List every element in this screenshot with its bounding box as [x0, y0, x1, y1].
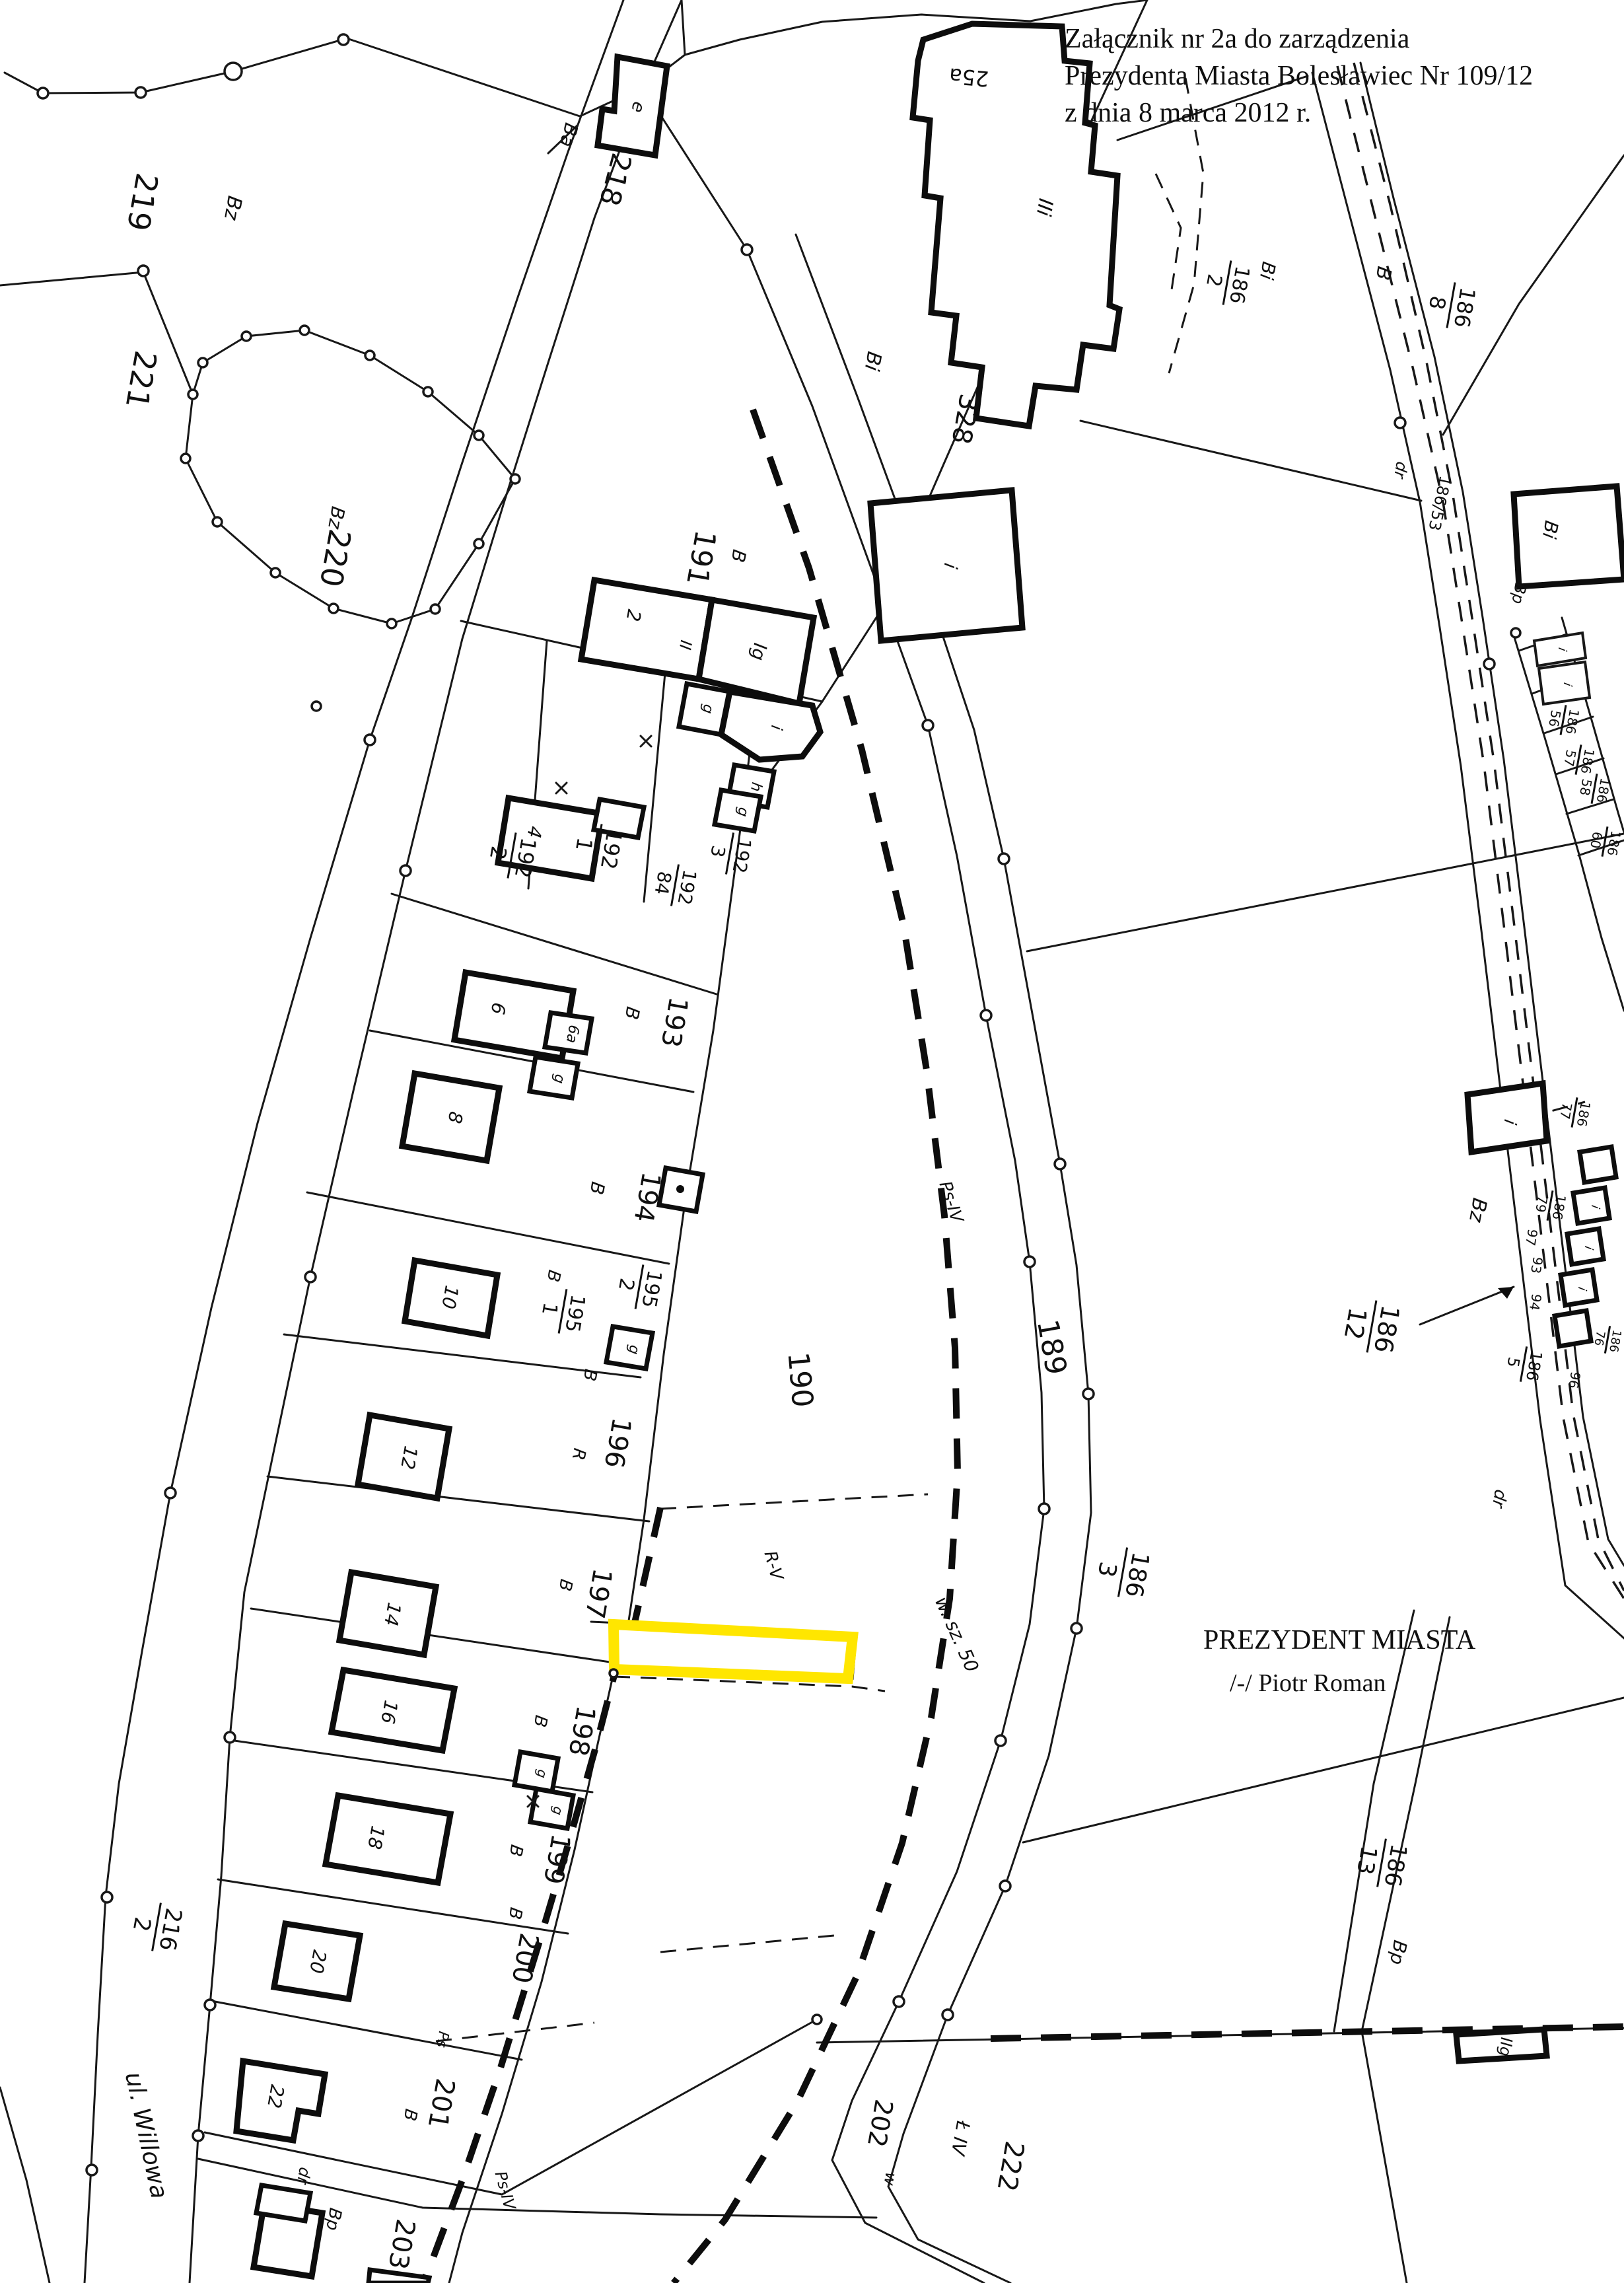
landuse-b-195: B [543, 1268, 565, 1284]
house-number-12: 12 [396, 1444, 422, 1471]
landuse-b-195b: B [579, 1367, 601, 1383]
landuse-ps: Ps [433, 2030, 452, 2049]
parcel-label-186-77: 186 77 [1555, 1095, 1594, 1130]
parcel-label-96: 96 [1565, 1371, 1584, 1390]
landuse-bp-186-13: Bp [1386, 1939, 1411, 1967]
landuse-b-186-8: B [1370, 264, 1395, 281]
svg-text:2: 2 [127, 1915, 156, 1934]
svg-text:13: 13 [1351, 1844, 1382, 1877]
parcel-label-219: 219 [120, 170, 165, 234]
signature-title: PREZYDENT MIASTA [1203, 1625, 1476, 1655]
house-number-14: 14 [380, 1601, 406, 1628]
cross-mark-2 [641, 736, 651, 746]
house-number-18: 18 [363, 1824, 389, 1851]
house-number-10: 10 [437, 1284, 463, 1311]
row-building-1 [1580, 1147, 1616, 1182]
cross-mark-1 [556, 783, 567, 793]
cadastral-map: 219 Bz 221 Bz 220 218 Ba e 25a IIi 328 B… [0, 0, 1624, 2283]
house-18 [326, 1795, 450, 1883]
parcel-label-93: 93 [1528, 1256, 1546, 1275]
parcel-label-194: 194 [628, 1170, 667, 1225]
svg-text:79: 79 [1532, 1194, 1551, 1214]
parcel-label-186-53: 186/53 [1425, 474, 1454, 532]
landuse-dr-top: dr [1390, 460, 1411, 482]
attachment-note-line1: Załącznik nr 2a do zarządzenia [1065, 24, 1410, 54]
parcel-label-186-2: 186 2 [1199, 256, 1255, 309]
landuse-bi-328: Bi [859, 349, 886, 373]
survey-points [38, 34, 1520, 2175]
parcel-label-200: 200 [506, 1931, 545, 1986]
parcel-label-190: 190 [781, 1351, 819, 1409]
parcel-label-192-3: 192 3 [703, 828, 756, 878]
landuse-r-196: R [568, 1447, 590, 1462]
parcel-label-202: 202 [862, 2097, 899, 2150]
landuse-bi-186-2: Bi [1255, 260, 1280, 281]
landuse-dr-right-2: dr [1487, 1488, 1510, 1510]
landuse-dr-bottom: dr [293, 2166, 314, 2187]
house-203b [256, 2185, 310, 2221]
parcel-label-193: 193 [655, 995, 694, 1050]
landuse-w: w [880, 2171, 900, 2187]
landuse-bz-219: Bz [219, 194, 246, 223]
building-trapezoid-i [1467, 1083, 1547, 1152]
attachment-note-line2: Prezydenta Miasta Bolesławiec Nr 109/12 [1065, 61, 1533, 91]
svg-text:77: 77 [1557, 1101, 1575, 1120]
landuse-b-194: B [585, 1180, 609, 1196]
highlighted-parcel [614, 1624, 853, 1679]
outbuilding-label-6a: 6a [563, 1023, 582, 1044]
landuse-bp-road: Bp [1508, 581, 1530, 605]
parcel-label-186-8: 186 8 [1421, 278, 1481, 333]
parcel-label-328: 328 [946, 392, 985, 447]
attachment-note-line3: z dnia 8 marca 2012 r. [1065, 98, 1311, 128]
house-number-20: 20 [305, 1948, 331, 1975]
house-number-16: 16 [376, 1698, 402, 1725]
parcel-label-186-60: 186 60 [1586, 824, 1624, 859]
svg-text:1: 1 [537, 1301, 562, 1317]
svg-text:8: 8 [1424, 294, 1451, 312]
parcel-label-94: 94 [1526, 1293, 1545, 1312]
svg-text:2: 2 [614, 1276, 639, 1293]
parcel-label-186-57: 186 57 [1559, 742, 1598, 778]
thick-dashed-boundary [423, 410, 1624, 2283]
parcel-label-203: 203 [382, 2217, 421, 2272]
parcel-label-218: 218 [593, 150, 638, 209]
svg-text:5: 5 [1503, 1356, 1523, 1369]
parcel-label-186-56: 186 56 [1544, 702, 1582, 738]
svg-text:60: 60 [1587, 830, 1606, 850]
street-name: ul. Willowa [120, 2070, 173, 2201]
building-label-25a: 25a [948, 63, 989, 91]
svg-text:3: 3 [706, 844, 730, 859]
landuse-b-197: B [555, 1577, 577, 1593]
svg-text:58: 58 [1576, 778, 1595, 797]
landuse-b-201: B [400, 2107, 421, 2122]
parcel-label-220: 220 [313, 526, 358, 590]
building-191-a [581, 580, 712, 679]
signature-name: /-/ Piotr Roman [1230, 1669, 1386, 1697]
house-number-22: 22 [263, 2083, 289, 2110]
well-dot [676, 1185, 684, 1193]
svg-text:84: 84 [650, 869, 676, 896]
parcel-label-222: 222 [991, 2139, 1030, 2194]
leader-186-12 [1420, 1287, 1514, 1324]
landuse-b-193: B [620, 1005, 644, 1021]
parcel-boundaries [0, 0, 1624, 2283]
parcel-label-186-76: 186 76 [1590, 1323, 1624, 1356]
landuse-ba: Ba [555, 121, 583, 150]
svg-text:76: 76 [1591, 1330, 1607, 1347]
building-label-IIg: IIg [1496, 2037, 1516, 2058]
landuse-b-198: B [530, 1714, 551, 1729]
building-Bi-right [1514, 486, 1624, 587]
parcel-label-186-3: 186 3 [1089, 1542, 1154, 1602]
landuse-bz-right: Bz [1464, 1196, 1491, 1225]
parcel-label-186-5: 186 5 [1501, 1343, 1546, 1385]
parcel-label-192-84: 192 84 [649, 860, 701, 910]
svg-text:12: 12 [1339, 1305, 1373, 1342]
parcel-label-195-2: 195 2 [611, 1260, 667, 1313]
landuse-bp-203: Bp [322, 2206, 345, 2232]
landuse-b-199: B [505, 1843, 527, 1858]
parcel-label-97: 97 [1522, 1228, 1541, 1247]
parcel-label-197: 197 [579, 1566, 618, 1621]
parcel-label-221: 221 [119, 348, 164, 412]
row-building-5 [1555, 1311, 1591, 1346]
svg-text:56: 56 [1545, 709, 1564, 728]
parcel-label-189: 189 [1030, 1317, 1073, 1378]
svg-text:3: 3 [1092, 1560, 1121, 1579]
landuse-rv: R-V [760, 1549, 787, 1584]
landuse-b-191: B [726, 548, 750, 564]
parcel-label-216-2: 216 2 [124, 1898, 188, 1955]
parcel-label-195-1: 195 1 [534, 1285, 590, 1338]
house-203c [369, 2270, 429, 2283]
parcel-label-199: 199 [538, 1832, 577, 1887]
parcel-label-191: 191 [680, 528, 723, 589]
landuse-b-200: B [505, 1906, 526, 1921]
svg-text:2: 2 [1201, 272, 1226, 289]
parcel-label-201: 201 [422, 2076, 461, 2131]
landuse-psiv-bottom: Ps-IV [491, 2169, 520, 2213]
buildings [236, 24, 1624, 2283]
document-texts: Załącznik nr 2a do zarządzenia Prezydent… [1065, 24, 1533, 1697]
parcel-label-186-12: 186 12 [1337, 1295, 1405, 1358]
cadastral-map-page: 219 Bz 221 Bz 220 218 Ba e 25a IIi 328 B… [0, 0, 1624, 2283]
landuse-liv: Ł IV [946, 2119, 974, 2158]
parcel-label-196: 196 [598, 1416, 637, 1470]
svg-text:57: 57 [1561, 748, 1579, 768]
